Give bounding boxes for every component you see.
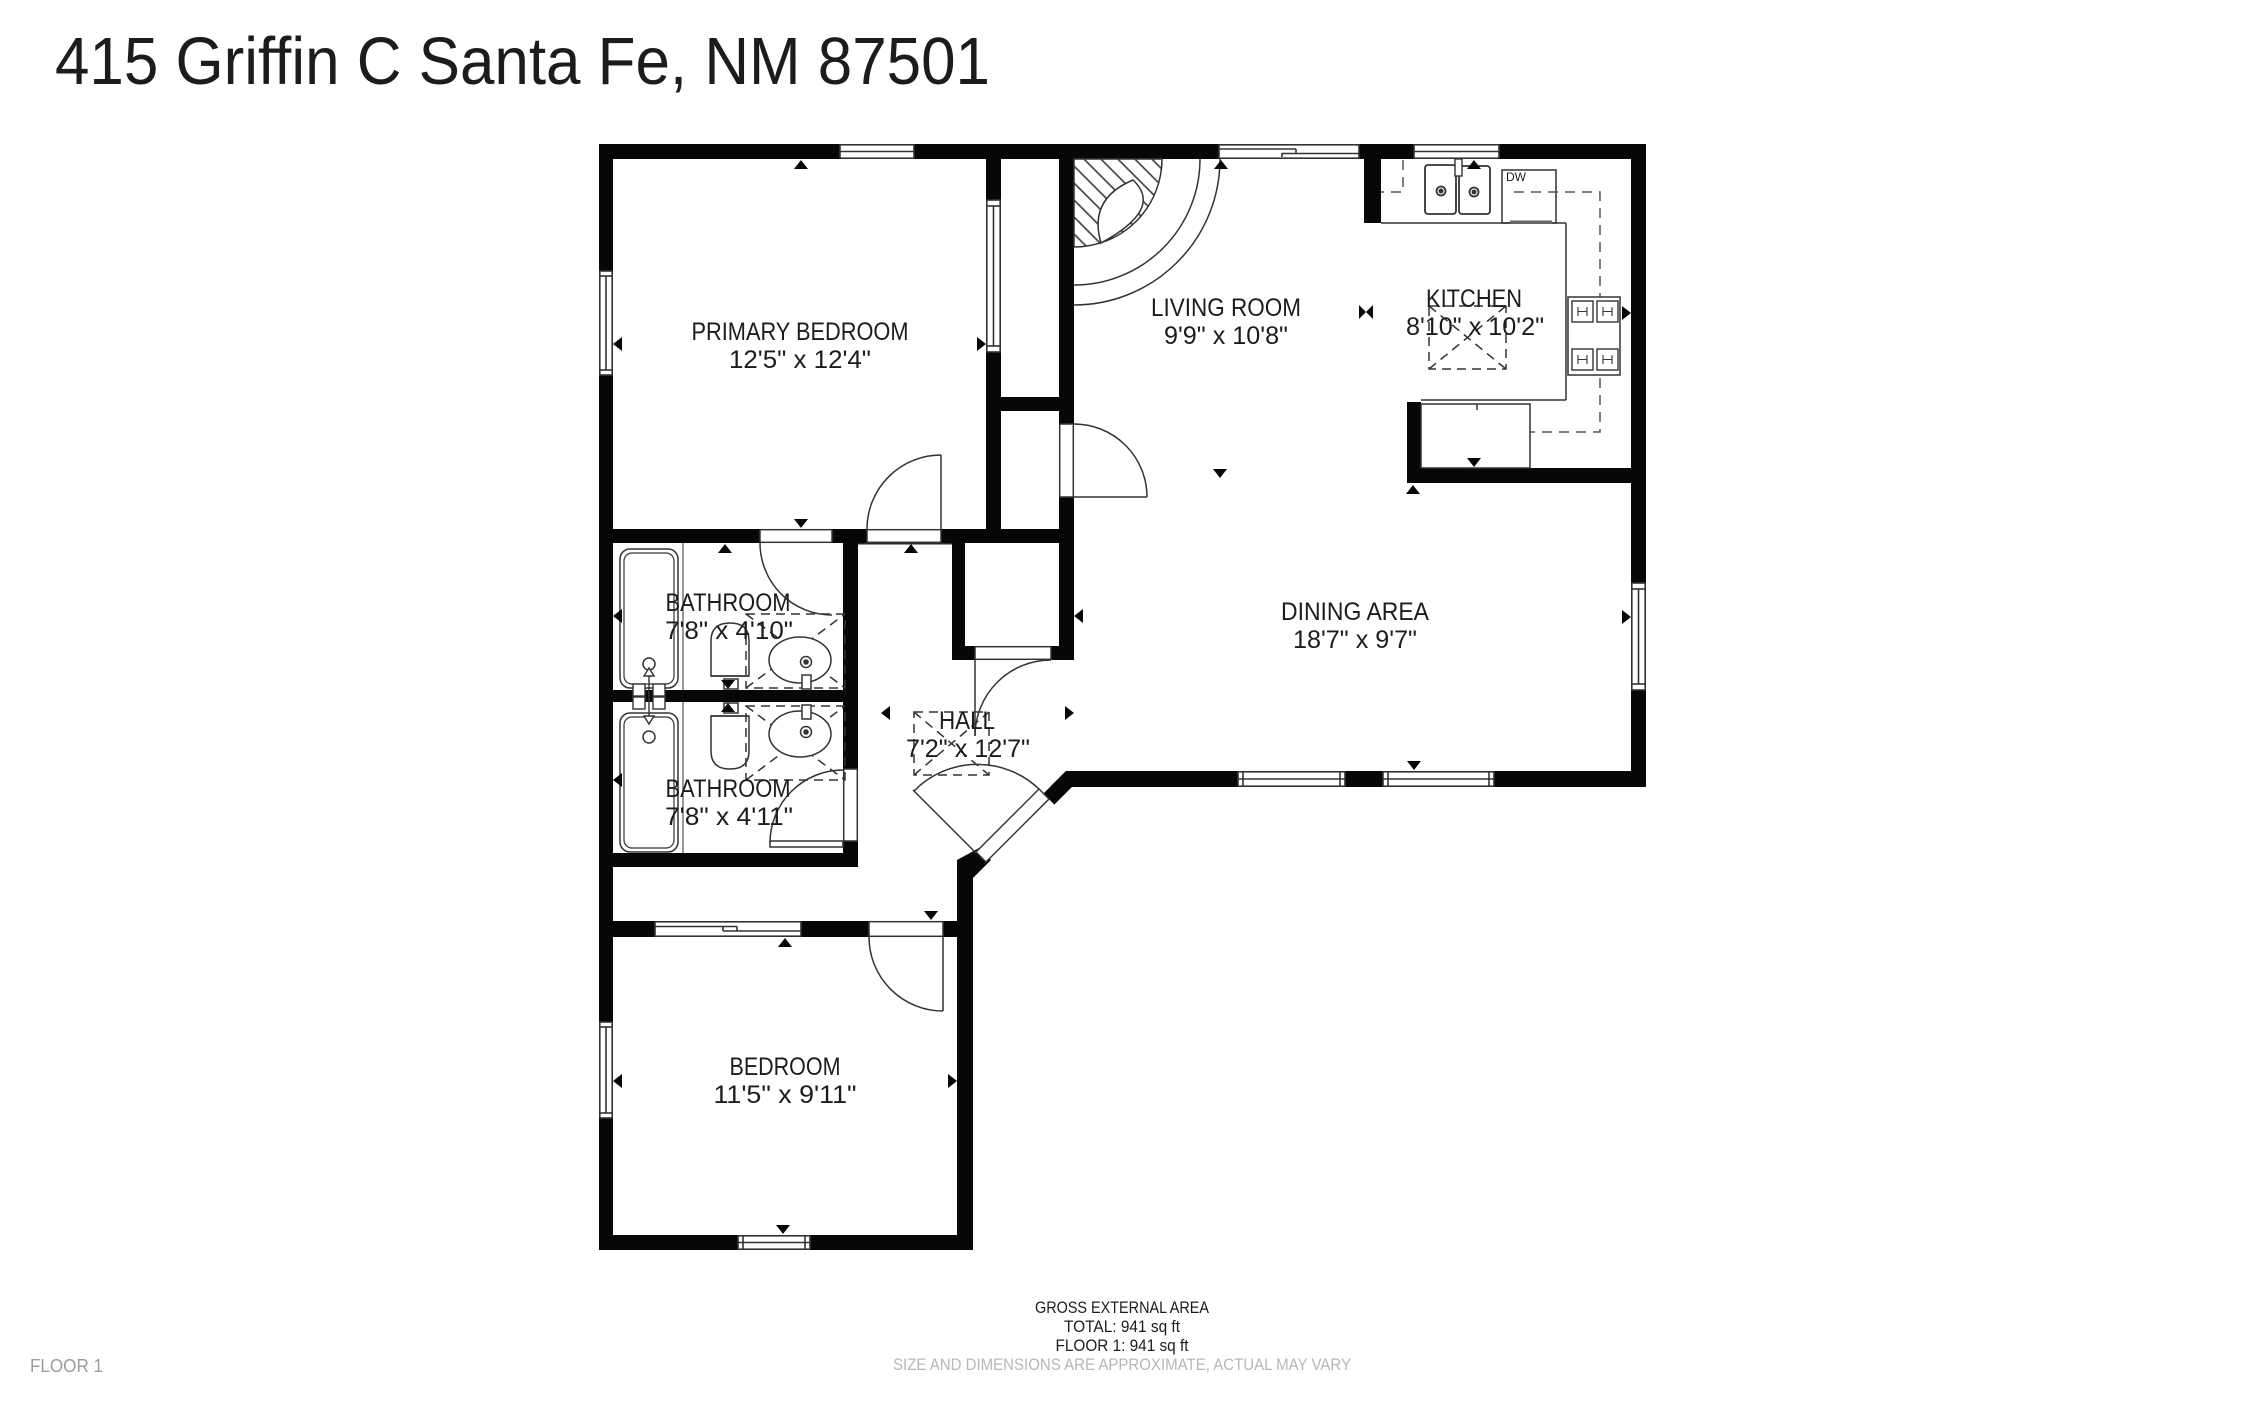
svg-text:FLOOR 1: 941 sq ft: FLOOR 1: 941 sq ft xyxy=(1056,1336,1189,1355)
svg-text:FLOOR 1: FLOOR 1 xyxy=(30,1356,103,1376)
svg-text:HALL: HALL xyxy=(939,707,995,735)
svg-text:GROSS EXTERNAL AREA: GROSS EXTERNAL AREA xyxy=(1035,1298,1210,1317)
svg-text:7'8" x 4'11": 7'8" x 4'11" xyxy=(665,803,793,831)
svg-text:7'8" x 4'10": 7'8" x 4'10" xyxy=(665,617,793,645)
svg-text:DW: DW xyxy=(1506,170,1527,184)
svg-text:7'2" x 12'7": 7'2" x 12'7" xyxy=(906,735,1030,763)
svg-text:PRIMARY BEDROOM: PRIMARY BEDROOM xyxy=(692,318,909,346)
svg-text:BEDROOM: BEDROOM xyxy=(730,1053,841,1081)
svg-text:8'10" x 10'2": 8'10" x 10'2" xyxy=(1406,313,1544,341)
svg-text:415 Griffin C Santa Fe, NM 875: 415 Griffin C Santa Fe, NM 87501 xyxy=(55,24,990,99)
svg-text:DINING AREA: DINING AREA xyxy=(1281,598,1429,626)
svg-text:BATHROOM: BATHROOM xyxy=(666,589,791,617)
svg-text:18'7" x 9'7": 18'7" x 9'7" xyxy=(1293,626,1417,654)
svg-text:SIZE AND DIMENSIONS ARE APPROX: SIZE AND DIMENSIONS ARE APPROXIMATE, ACT… xyxy=(893,1355,1351,1374)
svg-text:TOTAL: 941 sq ft: TOTAL: 941 sq ft xyxy=(1064,1317,1180,1336)
svg-text:12'5" x 12'4": 12'5" x 12'4" xyxy=(729,346,871,374)
svg-text:11'5" x 9'11": 11'5" x 9'11" xyxy=(714,1081,857,1109)
svg-text:9'9" x 10'8": 9'9" x 10'8" xyxy=(1164,322,1288,350)
svg-text:LIVING ROOM: LIVING ROOM xyxy=(1151,294,1301,322)
svg-text:BATHROOM: BATHROOM xyxy=(666,775,791,803)
svg-text:KITCHEN: KITCHEN xyxy=(1426,285,1522,313)
